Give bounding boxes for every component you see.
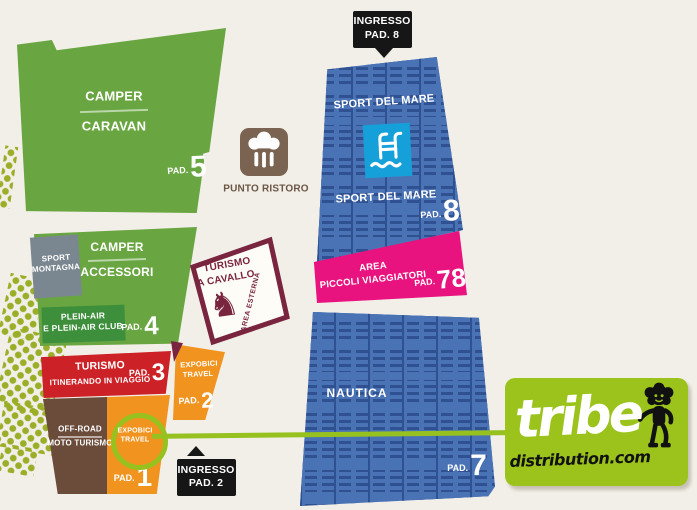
entrance-pad2-label: INGRESSO: [177, 464, 234, 476]
pool-ladder-icon: [363, 123, 413, 178]
entrance-pad2-label: PAD. 2: [189, 477, 223, 489]
horse-icon: ♞: [206, 283, 242, 327]
nautica-label: NAUTICA: [327, 386, 388, 400]
camper-caravan-label: CAMPER: [85, 89, 143, 104]
punto-ristoro-label: PUNTO RISTORO: [223, 184, 309, 195]
arrow-up-icon: [187, 446, 205, 456]
pad-5-marker: PAD. 5: [167, 155, 208, 181]
expobici-travel-1-label: EXPOBICI: [117, 428, 152, 435]
off-road-label: MOTO TURISMO: [47, 439, 112, 448]
pad-2-marker: PAD. 2: [178, 391, 214, 410]
arrow-down-icon: [375, 48, 393, 58]
fair-map: CAMPER CARAVAN PAD. 5 PUNTO RISTORO CAMP…: [0, 0, 697, 510]
restaurant-icon: [240, 128, 288, 176]
tribe-brand-text: tribe: [514, 384, 643, 451]
dots-decoration: [0, 145, 18, 208]
pad-4-marker: PAD. 4: [121, 315, 159, 337]
pad-78-marker: PAD. 78: [413, 267, 467, 293]
expobici-travel-1-label: TRAVEL: [121, 437, 150, 444]
camper-caravan-label: CARAVAN: [82, 119, 146, 134]
camper-accessori-label: CAMPER: [90, 240, 143, 254]
entrance-pad8-label: INGRESSO: [353, 15, 410, 27]
pad-7-marker: PAD. 7: [447, 454, 487, 478]
pad-8-marker: PAD. 8: [420, 199, 461, 225]
off-road-label: OFF-ROAD: [58, 425, 102, 434]
turismo-itinerante-label: TURISMO: [75, 359, 125, 373]
pad-3-marker: PAD. 3: [129, 363, 166, 383]
plein-air-label: PLEIN-AIR: [61, 310, 106, 322]
camper-accessori-label: ACCESSORI: [80, 265, 153, 279]
entrance-pad8-label: PAD. 8: [365, 29, 399, 41]
turismo-a-cavallo-outline: [185, 233, 297, 349]
dots-decoration: [0, 443, 38, 477]
expobici-travel-2-label: TRAVEL: [182, 369, 213, 380]
